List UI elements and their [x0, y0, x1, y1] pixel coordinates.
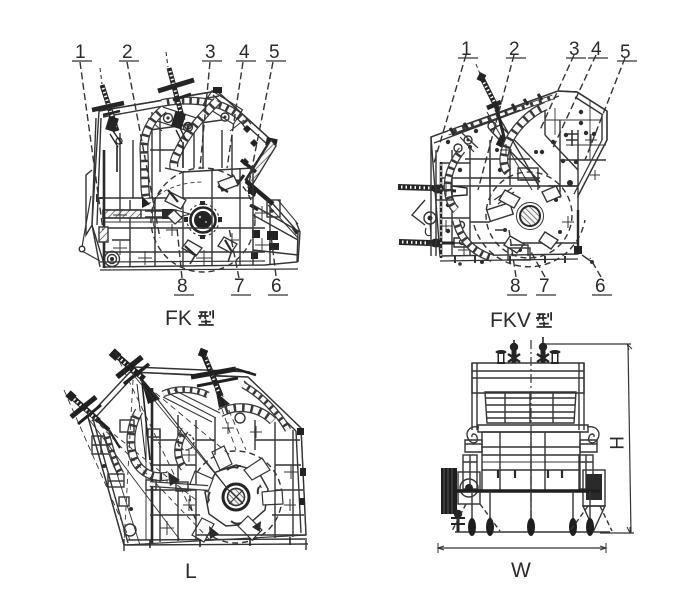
- svg-text:7: 7: [539, 276, 550, 297]
- svg-text:6: 6: [595, 276, 606, 297]
- svg-text:W: W: [511, 559, 531, 582]
- svg-text:1: 1: [75, 42, 86, 63]
- svg-text:8: 8: [510, 276, 521, 297]
- svg-text:7: 7: [234, 276, 245, 297]
- svg-text:H: H: [605, 436, 626, 450]
- svg-text:FK: FK: [165, 307, 192, 330]
- svg-text:FKV: FKV: [490, 309, 531, 332]
- svg-text:L: L: [185, 560, 197, 583]
- svg-text:4: 4: [239, 42, 250, 63]
- svg-text:8: 8: [177, 276, 188, 297]
- svg-text:3: 3: [205, 42, 216, 63]
- svg-text:1: 1: [461, 39, 472, 60]
- svg-text:3: 3: [569, 39, 580, 60]
- svg-text:5: 5: [620, 42, 631, 63]
- svg-text:2: 2: [122, 42, 133, 63]
- svg-text:2: 2: [509, 39, 520, 60]
- svg-text:4: 4: [591, 39, 602, 60]
- svg-text:5: 5: [269, 42, 280, 63]
- svg-text:6: 6: [271, 276, 282, 297]
